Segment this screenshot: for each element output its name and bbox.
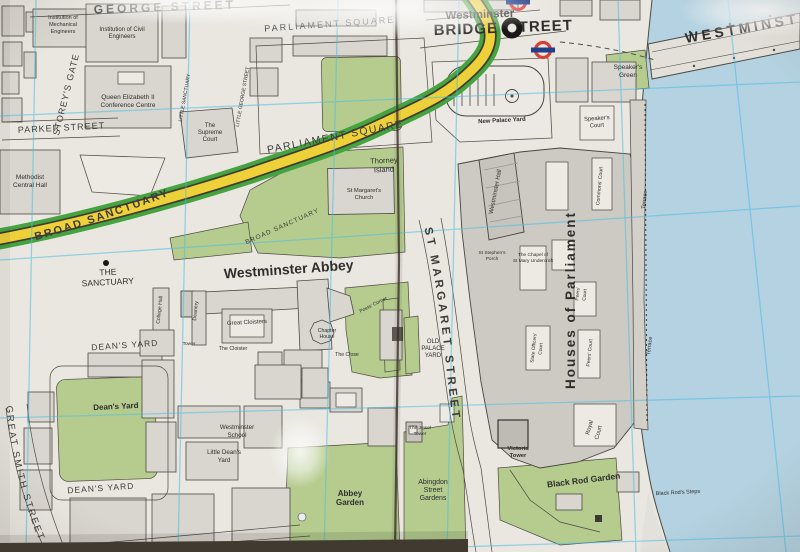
photo-artifacts bbox=[0, 0, 800, 552]
westminster-map: GEORGE STREET PARLIAMENT SQUARE Westmins… bbox=[0, 0, 800, 552]
vignette bbox=[0, 0, 800, 552]
map-photo: GEORGE STREET PARLIAMENT SQUARE Westmins… bbox=[0, 0, 800, 552]
